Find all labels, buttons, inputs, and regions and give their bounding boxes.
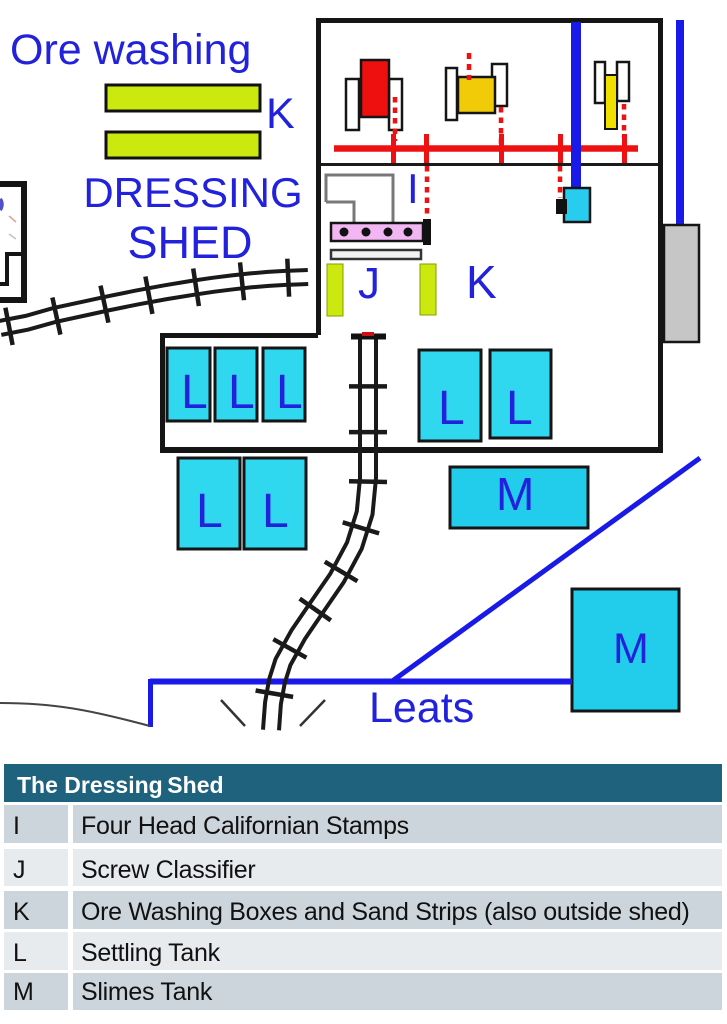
svg-text:SHED: SHED [127,217,252,268]
svg-text:L: L [438,382,465,435]
svg-text:I: I [407,165,419,212]
svg-text:K: K [466,256,497,308]
svg-text:L: L [228,366,255,419]
svg-text:DRESSING: DRESSING [83,169,302,216]
svg-text:L: L [262,485,289,538]
svg-text:M: M [613,625,649,673]
svg-text:J: J [358,259,380,308]
svg-text:M: M [496,468,534,520]
svg-text:L: L [196,485,223,538]
svg-text:Ore washing: Ore washing [10,26,251,74]
svg-text:L: L [506,382,533,435]
svg-text:K: K [266,90,295,138]
svg-text:L: L [276,366,303,419]
svg-text:L: L [181,366,208,419]
svg-text:Leats: Leats [369,684,474,732]
